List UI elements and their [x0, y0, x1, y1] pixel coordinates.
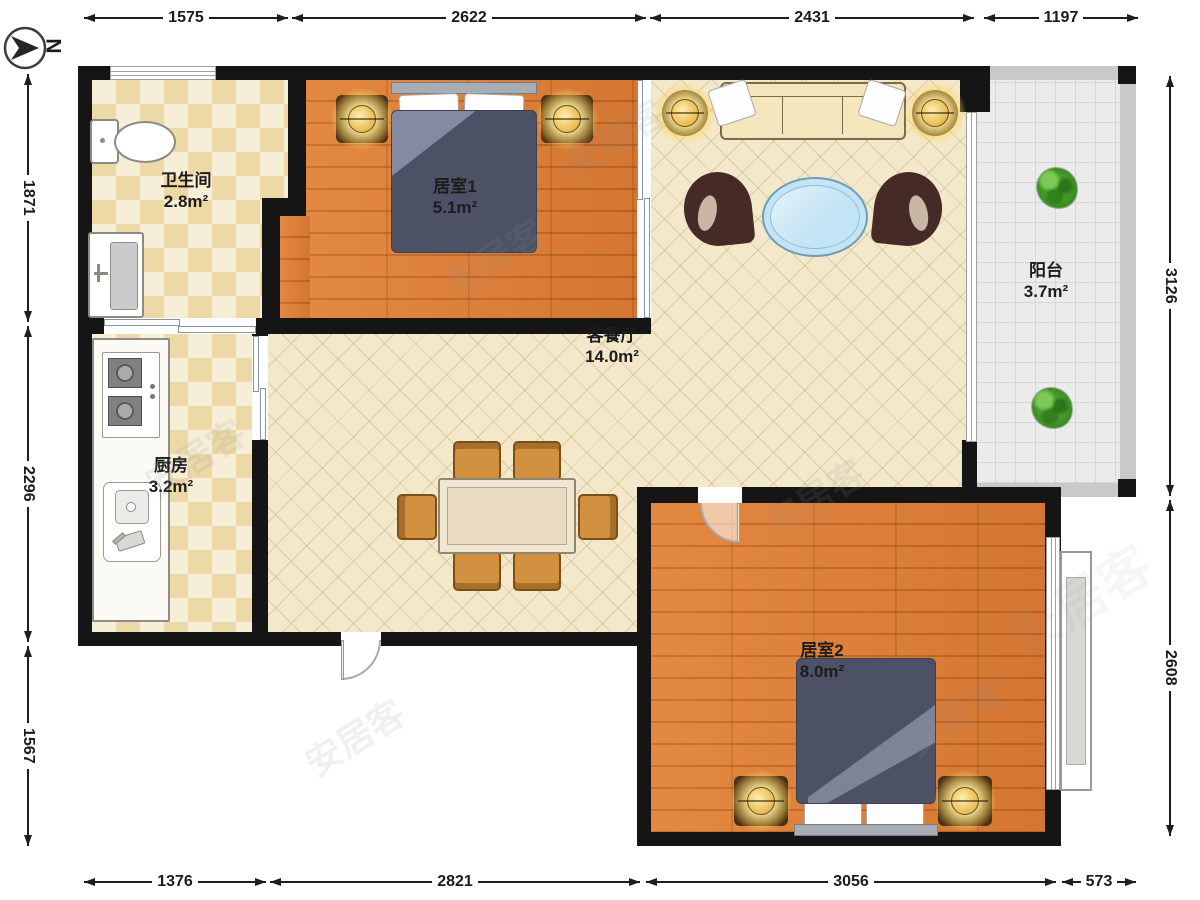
dim-top-4: 1197: [984, 8, 1138, 28]
sofa-divider: [782, 96, 783, 134]
north-label: N: [41, 38, 65, 53]
wall-bedroom2-left: [637, 487, 651, 846]
bay-window-sill: [1066, 577, 1086, 765]
lamp-icon: [553, 105, 581, 133]
sofa-divider: [842, 96, 843, 134]
dim-left-1: 1871: [16, 74, 40, 322]
dim-bottom-1: 1376: [84, 872, 266, 892]
bedroom2-headboard: [794, 824, 938, 836]
dim-top-2: 2622: [292, 8, 646, 28]
dim-top-1: 1575: [84, 8, 288, 28]
bedroom2-door-gap: [698, 487, 742, 503]
dim-value: 3126: [1161, 268, 1179, 304]
watermark: 安居客: [294, 685, 413, 786]
bedroom2-nightstand-left: [734, 776, 788, 826]
bathroom-faucet-handle: [97, 264, 100, 282]
balcony-sliding-door: [966, 112, 977, 442]
dim-bottom-4: 573: [1062, 872, 1136, 892]
dining-table: [438, 478, 576, 554]
dining-chair-left: [397, 494, 437, 540]
toilet-flush-button: [100, 138, 105, 143]
lamp-glow: [934, 770, 996, 832]
coffee-table: [762, 177, 868, 257]
dining-chair-top-2: [513, 441, 561, 481]
dim-value: 1197: [1044, 9, 1079, 27]
lamp-icon: [348, 105, 376, 133]
dim-value: 2821: [437, 873, 473, 891]
bathroom-sink-basin: [110, 242, 138, 310]
dim-bottom-2: 2821: [270, 872, 640, 892]
stove-knob-1: [150, 384, 155, 389]
dim-right-1: 3126: [1158, 76, 1182, 496]
bedroom1-headboard: [391, 82, 537, 94]
lamp-glow: [331, 88, 393, 150]
bedroom2-nightstand-right: [938, 776, 992, 826]
dining-chair-bottom-1: [453, 551, 501, 591]
living-wall-lamp-left: [662, 90, 708, 136]
duvet-fold: [797, 659, 935, 803]
lamp-glow: [654, 82, 716, 144]
dim-value: 1871: [19, 180, 37, 216]
dim-right-2: 2608: [1158, 500, 1182, 836]
dim-value: 1575: [168, 9, 204, 27]
dim-value: 1567: [19, 728, 37, 764]
balcony-wall-right: [1120, 66, 1136, 497]
dining-chair-top-1: [453, 441, 501, 481]
dim-left-3: 1567: [16, 646, 40, 846]
bedroom1-nightstand-right: [541, 95, 593, 143]
dining-chair-right: [578, 494, 618, 540]
dim-left-2: 2296: [16, 326, 40, 642]
dining-chair-bottom-2: [513, 551, 561, 591]
balcony-plant-bottom: [1032, 388, 1072, 428]
dim-value: 573: [1086, 873, 1113, 891]
floor-plan: 卫生间 2.8m² 居室1 5.1m² 客餐厅 14.0m² 厨房 3.2m² …: [0, 0, 1200, 900]
duvet-fold: [392, 111, 536, 252]
kitchen-living-door: [252, 336, 268, 440]
coffee-table-top: [770, 185, 860, 249]
lamp-icon: [671, 99, 699, 127]
living-wall-lamp-right: [912, 90, 958, 136]
entry-door-leaf: [341, 640, 344, 680]
balcony-plant-top: [1037, 168, 1077, 208]
bathroom-kitchen-sliding-door: [104, 318, 256, 334]
dim-top-3: 2431: [650, 8, 974, 28]
bedroom1-floor-notch: [280, 216, 310, 318]
balcony-wall-top: [975, 66, 1120, 80]
stove-knob-2: [150, 394, 155, 399]
lamp-glow: [904, 82, 966, 144]
stove-burner-2: [108, 396, 142, 426]
wall-balcony-stub-bottom: [962, 440, 977, 503]
bedroom2-door-leaf: [737, 503, 740, 543]
entry-door-swing-arc: [341, 640, 381, 680]
bedroom1-nightstand-left: [336, 95, 388, 143]
armchair-cushion: [695, 194, 720, 233]
lamp-icon: [747, 787, 775, 815]
bathroom-window: [110, 66, 216, 80]
balcony-corner-top-right: [1118, 66, 1136, 84]
armchair-cushion: [906, 194, 931, 233]
lamp-icon: [921, 99, 949, 127]
wall-bathroom-right-upper: [288, 66, 306, 216]
lamp-glow: [536, 88, 598, 150]
stove-burner-1: [108, 358, 142, 388]
dim-value: 2622: [451, 9, 487, 27]
balcony-corner-bottom-right: [1118, 479, 1136, 497]
bedroom1-bed-duvet: [391, 110, 537, 253]
dim-value: 3056: [833, 873, 869, 891]
kitchen-sink-drain: [126, 502, 136, 512]
dim-value: 2431: [794, 9, 830, 27]
dim-value: 2608: [1161, 650, 1179, 686]
dim-value: 1376: [157, 873, 193, 891]
bedroom1-sliding-door: [637, 80, 651, 318]
toilet-bowl: [114, 121, 176, 163]
dining-table-top: [447, 487, 567, 545]
bedroom2-window: [1046, 537, 1060, 790]
bedroom2-bed-duvet: [796, 658, 936, 804]
wall-bathroom-right-lower: [262, 198, 280, 334]
dim-value: 2296: [19, 466, 37, 502]
lamp-glow: [730, 770, 792, 832]
dim-bottom-3: 3056: [646, 872, 1056, 892]
lamp-icon: [951, 787, 979, 815]
